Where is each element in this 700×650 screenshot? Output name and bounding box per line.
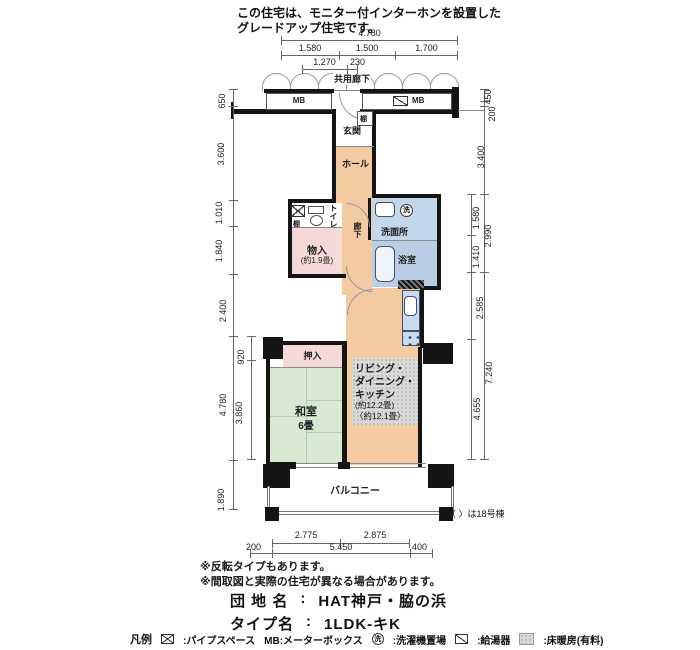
entrance-step — [336, 146, 374, 147]
window — [296, 467, 340, 468]
dim-bottom-5450: 5.450 — [272, 542, 410, 552]
dim-left-920: 920 — [236, 337, 246, 377]
dim-bottom-2875: 2.875 — [340, 530, 410, 540]
legend-meter-box: MB:メーターボックス — [264, 632, 363, 647]
dim-bottom-200: 200 — [246, 542, 261, 552]
pillar — [428, 464, 454, 488]
wall-cap — [452, 87, 459, 118]
pipe-space-icon — [291, 205, 305, 217]
wall — [342, 341, 347, 467]
dim-left-3600: 3.600 — [216, 134, 226, 174]
balcony-post — [265, 507, 279, 521]
wall — [437, 194, 441, 290]
balcony-rail-bottom — [267, 511, 454, 515]
dim-left-4780: 4.780 — [218, 385, 228, 425]
dim-tick — [467, 339, 476, 340]
dim-tick — [480, 272, 489, 273]
window — [296, 463, 340, 464]
dim-right-3400: 3.400 — [476, 137, 486, 177]
dim-right-7240: 7.240 — [484, 353, 494, 393]
closet-label: 押入 — [283, 349, 342, 362]
pillar — [423, 343, 453, 364]
dim-top-3: 1.700 — [395, 43, 458, 53]
pipe-space-legend-icon — [161, 634, 174, 644]
legend-title: 凡例 — [130, 631, 152, 647]
washroom-label: 洗面所 — [381, 225, 408, 238]
entrance-label: 玄関 — [343, 124, 361, 137]
washbasin-icon — [375, 202, 395, 217]
dim-line — [233, 89, 234, 510]
dim-line — [251, 336, 252, 460]
ldk-size-label-2: 〈約12.1畳〉 — [355, 410, 406, 422]
bathroom-label: 浴室 — [398, 253, 416, 266]
dim-tick — [229, 106, 238, 107]
dim-left-2400: 2.400 — [218, 291, 228, 331]
dim-right-1410: 1.410 — [471, 237, 481, 277]
dim-left-3860: 3.860 — [234, 393, 244, 433]
dim-line — [302, 69, 358, 70]
entrance-shelf-label: 棚 — [360, 114, 367, 124]
legend-pipe-space: :パイプスペース — [183, 632, 255, 647]
common-corridor-label: 共用廊下 — [333, 72, 371, 85]
floorplan-page: この住宅は、モニター付インターホンを設置した グレードアップ住宅です。 — [0, 0, 700, 650]
dim-bottom-2775: 2.775 — [272, 530, 340, 540]
dim-tick — [229, 226, 238, 227]
bathtub-icon — [375, 246, 395, 282]
dim-left-1010: 1.010 — [214, 193, 224, 233]
legend-heater: :給湯器 — [477, 632, 510, 647]
floor-heating-legend-icon — [519, 633, 534, 645]
footer-note-1: ※反転タイプもあります。 — [200, 558, 331, 574]
wall — [424, 286, 441, 290]
estate-name-separator: : — [300, 590, 306, 611]
hallway-label: 廊下 — [352, 222, 363, 238]
partition — [270, 367, 342, 368]
hall-floor — [336, 147, 374, 203]
laundry-legend-icon: 洗 — [372, 633, 384, 645]
entrance-lintel — [334, 90, 360, 91]
estate-name-value: HAT神戸・脇の浜 — [318, 590, 447, 611]
wall — [418, 347, 422, 467]
toilet-tank-icon — [308, 206, 324, 214]
dim-line — [250, 553, 433, 554]
water-heater-icon — [393, 96, 408, 106]
dim-top-2: 1.500 — [339, 43, 395, 53]
dim-right-2990: 2.990 — [483, 216, 493, 256]
window — [350, 463, 426, 464]
estate-name-row: 団 地 名 : HAT神戸・脇の浜 — [230, 590, 447, 611]
dim-right-4655: 4.655 — [472, 389, 482, 429]
wall — [288, 274, 346, 278]
dim-line — [281, 40, 458, 41]
estate-name-label: 団 地 名 — [230, 590, 288, 611]
toilet-shelf-label: 棚 — [293, 219, 300, 229]
dim-top-1: 1.580 — [281, 43, 339, 53]
wall — [338, 462, 350, 469]
legend-floor-heating: :床暖房(有料) — [543, 632, 603, 647]
meter-box-right-label: MB — [412, 96, 424, 105]
dim-tick — [229, 460, 238, 461]
dim-line — [281, 55, 458, 56]
laundry-place-icon: 洗 — [400, 204, 413, 217]
dim-left-1840: 1.840 — [214, 231, 224, 271]
footer-note-2: ※間取図と実際の住宅が異なる場合があります。 — [200, 573, 441, 589]
dim-bottom-400: 400 — [412, 542, 427, 552]
building-18-note: 〈 〉は18号棟 — [447, 507, 505, 520]
tatami-size-label: 6畳 — [270, 417, 342, 432]
dim-tick — [229, 274, 238, 275]
dim-top-total: 4.780 — [281, 28, 458, 38]
extension-line — [458, 110, 484, 111]
pillar — [263, 464, 290, 488]
balcony-label: バルコニー — [300, 482, 410, 497]
meter-box-left-label: MB — [266, 96, 332, 105]
tatami-line — [306, 432, 342, 433]
wall — [420, 288, 424, 348]
dim-right-200: 200 — [487, 94, 497, 134]
kitchen-sink-icon — [404, 296, 417, 316]
stove-icon — [402, 331, 420, 346]
window — [350, 467, 426, 468]
dim-left-1890: 1.890 — [216, 480, 226, 520]
dim-right-2585: 2.585 — [475, 288, 485, 328]
dim-tick — [410, 549, 411, 558]
water-heater-legend-icon — [455, 634, 468, 644]
tatami-line — [306, 400, 342, 401]
wall — [332, 109, 336, 203]
dim-tick — [395, 51, 396, 60]
legend-laundry: :洗濯機置場 — [393, 632, 446, 647]
dim-tick — [272, 549, 273, 558]
dim-top-4: 1.270 — [302, 57, 347, 67]
dim-tick — [347, 65, 348, 74]
toilet-label: トイレ — [328, 204, 339, 228]
dim-left-650: 650 — [217, 81, 227, 121]
partition — [372, 240, 437, 241]
hall-label: ホール — [342, 157, 369, 170]
dim-tick — [229, 200, 238, 201]
dim-tick — [480, 194, 489, 195]
wall — [288, 199, 336, 203]
storage-size-label: (約1.9畳) — [292, 255, 342, 266]
dim-tick — [247, 360, 256, 361]
toilet-bowl-icon — [310, 215, 323, 226]
dim-right-1580: 1.580 — [471, 198, 481, 238]
legend-row: 凡例 :パイプスペース MB:メーターボックス 洗:洗濯機置場 :給湯器 :床暖… — [130, 631, 603, 647]
wall — [376, 194, 441, 198]
